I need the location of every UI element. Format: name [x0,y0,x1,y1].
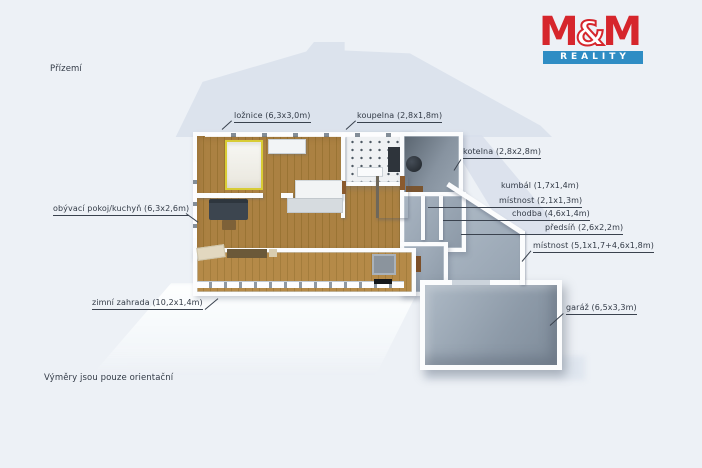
footnote: Výměry jsou pouze orientační [44,373,173,383]
door-threshold [416,256,421,272]
label-mistnost-a: místnost (2,1x1,3m) [499,196,582,208]
label-chodba: chodba (4,6x1,4m) [512,209,590,221]
boiler [406,156,422,172]
windows-top-wall [205,133,401,137]
room-garage [420,280,562,370]
wall-small-rooms-divider [421,196,425,240]
leader-predsin [461,234,545,235]
dining-chair [269,249,277,257]
logo-ampersand: & [576,14,603,54]
kitchen-counter-white [295,180,343,199]
glass-wall [197,281,404,288]
label-kumbal: kumbál (1,7x1,4m) [501,181,579,191]
shelf [406,186,423,192]
floor-title: Přízemí [50,64,82,74]
leader-chodba [443,220,512,221]
label-predsin: předsíň (2,6x2,2m) [545,223,623,235]
label-zimni-zahrada: zimní zahrada (10,2x1,4m) [92,298,203,310]
windows-left-wall [193,162,197,238]
logo-m-right: M [602,9,639,55]
wardrobe [268,139,306,154]
kitchen-island-gray [287,198,343,213]
wall-small-rooms-divider [439,196,443,240]
label-garaz: garáž (6,5x3,3m) [566,303,637,315]
door-threshold [342,181,346,194]
label-obyvaci: obývací pokoj/kuchyň (6,3x2,6m) [53,204,189,216]
floorplan-page: Přízemí ložnice (6,3x3,0m) koupelna (2,8… [0,0,702,468]
exterior-door [372,254,396,275]
stairs [376,176,408,218]
brand-logo: M&M REALITY [531,12,647,64]
door-mat [374,279,392,284]
coffee-table [222,220,236,230]
light-glow-bottom [92,283,422,375]
logo-mm-text: M&M [531,12,647,54]
label-loznice: ložnice (6,3x3,0m) [234,111,311,123]
bed [225,140,263,190]
garage-door [452,280,490,285]
shower [388,147,400,172]
dining-table [227,249,267,258]
label-kotelna: kotelna (2,8x2,8m) [463,147,541,159]
label-mistnost-b: místnost (5,1x1,7+4,6x1,8m) [533,241,654,253]
couch [209,199,248,220]
wall-bedroom-living [197,193,263,198]
logo-m-left: M [539,9,576,55]
leader-mistnost-a [428,207,499,208]
label-koupelna: koupelna (2,8x1,8m) [357,111,442,123]
